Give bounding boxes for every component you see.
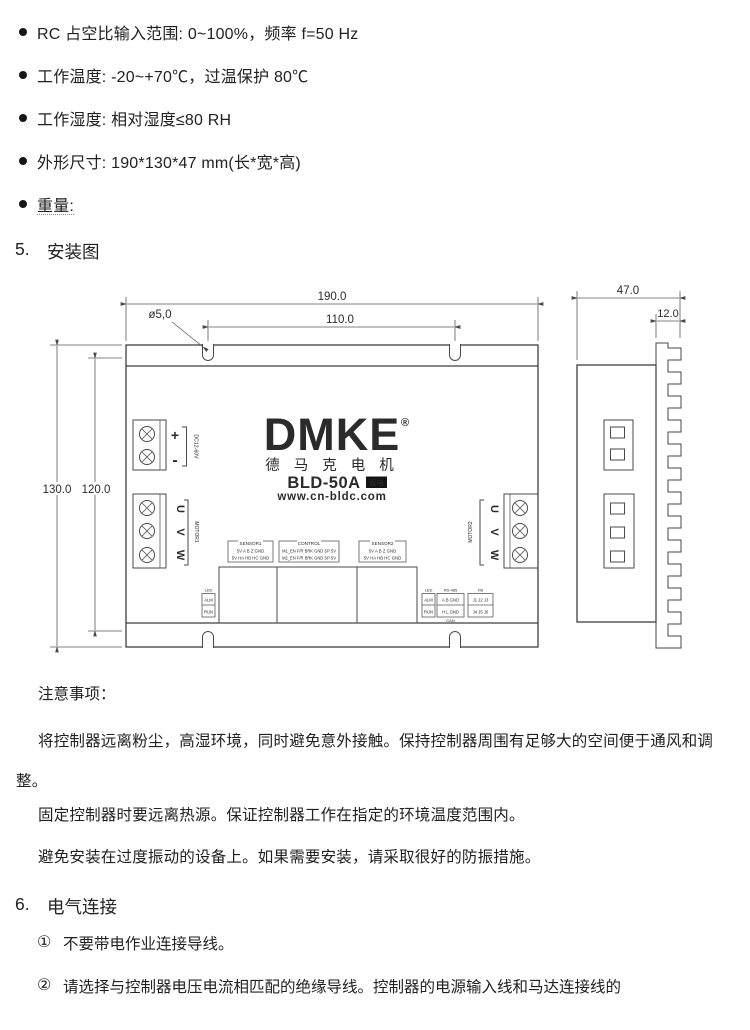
led-title: LED: [205, 588, 213, 593]
run-led-label: RUN: [204, 610, 213, 615]
sensor2-title: SENSOR2: [372, 541, 394, 546]
note-paragraph: 将控制器远离粉尘，高湿环境，同时避免意外接触。保持控制器周围有足够大的空间便于通…: [16, 722, 722, 802]
dim-hole: ø5,0: [148, 309, 171, 321]
control-row2: M2_EN F/R BRK GND SP 5V: [282, 556, 336, 561]
screw-terminal: [140, 501, 155, 516]
heatsink-fins: [656, 343, 681, 648]
list-item-text: 请选择与控制器电压电流相匹配的绝缘导线。控制器的电源输入线和马达连接线的: [63, 975, 621, 997]
side-connector-upper: [604, 420, 633, 470]
list-item-text: 不要带电作业连接导线。: [63, 932, 234, 954]
run-led-label: RUN: [424, 610, 433, 615]
spec-text: 工作湿度: 相对湿度≤80 RH: [37, 106, 231, 130]
brand-chinese: 德 马 克 电 机: [265, 457, 399, 474]
list-item: ① 不要带电作业连接导线。: [37, 932, 234, 954]
dim-height: 130.0: [43, 484, 72, 496]
note-paragraph: 避免安装在过度振动的设备上。如果需要安装，请采取很好的防振措施。: [16, 838, 722, 878]
screw-terminal: [513, 524, 528, 539]
motor1-pin-v: V: [174, 528, 186, 536]
alarm-led-label: ALM: [424, 598, 433, 603]
section-number: 5.: [15, 239, 47, 264]
motor2-terminal-block: U V W MOTOR2: [468, 494, 538, 568]
motor2-pin-v: V: [488, 528, 500, 536]
spec-item: 外形尺寸: 190*130*47 mm(长*宽*高): [19, 139, 358, 182]
sensor2-pinout: SENSOR2 5V A B Z GND 5V HA HB HC GND: [359, 539, 406, 563]
section-5-heading: 5. 安装图: [15, 239, 100, 264]
rs485-can-port: RS-485 A B GND H L GND CAN: [437, 588, 464, 624]
side-connector-lower: [604, 494, 634, 568]
led-indicator-left: LED ALM RUN: [202, 588, 215, 618]
circled-number-icon: ②: [37, 975, 63, 997]
spec-text: 外形尺寸: 190*130*47 mm(长*宽*高): [37, 149, 301, 173]
motor2-label: MOTOR2: [468, 521, 474, 543]
control-title: CONTROL: [298, 541, 321, 546]
note-paragraph: 固定控制器时要远离热源。保证控制器工作在指定的环境温度范围内。: [16, 796, 722, 836]
spec-item: 工作温度: -20~+70℃，过温保护 80℃: [19, 53, 358, 96]
section-title: 电气连接: [47, 894, 117, 919]
rs485-title: RS-485: [444, 588, 458, 593]
sensor1-pinout: SENSOR1 5V A B Z GND 5V HA HB HC GND: [228, 539, 273, 563]
sensor1-row1: 5V A B Z GND: [237, 549, 264, 554]
section-title: 安装图: [47, 239, 100, 264]
spec-item: 工作湿度: 相对湿度≤80 RH: [19, 96, 358, 139]
rs485-row1: A B GND: [442, 598, 459, 603]
sensor2-connector: [357, 567, 417, 623]
spec-item: RC 占空比输入范围: 0~100%，频率 f=50 Hz: [19, 10, 358, 53]
side-view: [577, 343, 681, 648]
motor1-pin-w: W: [174, 550, 186, 561]
dim-inner-height: 120.0: [82, 484, 111, 496]
spec-text: RC 占空比输入范围: 0~100%，频率 f=50 Hz: [37, 20, 358, 44]
brand-logo: DMKE ® 德 马 克 电 机 BLD-50A 双电 www.cn-bldc.…: [264, 409, 409, 503]
motor2-pin-w: W: [488, 550, 500, 561]
section-number: 6.: [15, 894, 47, 919]
brand-name: DMKE: [264, 409, 401, 460]
jumper-row2: J4 J5 J6: [473, 610, 489, 615]
motor2-pin-u: U: [488, 505, 500, 513]
spec-text: 重量:: [37, 192, 74, 216]
dim-fin: 12.0: [657, 308, 678, 320]
registered-mark-icon: ®: [401, 417, 409, 429]
jumper-title: FB: [478, 588, 483, 593]
control-pinout: CONTROL M1_EN F/R BRK GND SP 5V M2_EN F/…: [279, 539, 339, 563]
motor1-pin-u: U: [174, 505, 186, 513]
minus-label: -: [172, 452, 177, 469]
sensor2-row1: 5V A B Z GND: [369, 549, 396, 554]
sensor2-row2: 5V HA HB HC GND: [364, 556, 402, 561]
website: www.cn-bldc.com: [276, 491, 386, 503]
installation-diagram: + - DC12-60V: [0, 270, 750, 670]
section-6-heading: 6. 电气连接: [15, 894, 117, 919]
can-label: CAN: [446, 618, 455, 623]
motor1-label: MOTOR1: [193, 521, 199, 543]
dim-width: 190.0: [318, 291, 347, 303]
bullet-icon: [19, 71, 27, 79]
spec-item: 重量:: [19, 182, 358, 225]
screw-terminal: [140, 427, 155, 442]
bullet-icon: [19, 114, 27, 122]
screw-terminal: [513, 548, 528, 563]
power-terminal-block: + - DC12-60V: [133, 420, 199, 470]
screw-terminal: [513, 501, 528, 516]
model-number: BLD-50A: [287, 474, 360, 492]
screw-terminal: [140, 450, 155, 465]
plus-label: +: [171, 427, 179, 443]
spec-list: RC 占空比输入范围: 0~100%，频率 f=50 Hz 工作温度: -20~…: [19, 10, 358, 225]
jumper-block: FB J1 J2 J3 J4 J5 J6: [468, 588, 493, 618]
bullet-icon: [19, 157, 27, 165]
spec-text: 工作温度: -20~+70℃，过温保护 80℃: [37, 63, 308, 87]
led-title: LED: [425, 588, 433, 593]
bullet-icon: [19, 28, 27, 36]
bullet-icon: [19, 200, 27, 208]
manual-page: RC 占空比输入范围: 0~100%，频率 f=50 Hz 工作温度: -20~…: [0, 0, 750, 1030]
notes-title: 注意事项：: [38, 682, 116, 704]
control-row1: M1_EN F/R BRK GND SP 5V: [282, 549, 336, 554]
sensor1-row2: 5V HA HB HC GND: [232, 556, 270, 561]
alarm-led-label: ALM: [204, 598, 213, 603]
motor1-terminal-block: U V W MOTOR1: [133, 494, 199, 568]
dim-slot-span: 110.0: [326, 314, 354, 326]
circled-number-icon: ①: [37, 932, 63, 954]
sensor1-connector: [219, 567, 277, 623]
rs485-row2: H L GND: [442, 610, 459, 615]
control-connector: [277, 567, 357, 623]
dim-depth: 47.0: [617, 285, 639, 297]
voltage-range-label: DC12-60V: [193, 434, 199, 459]
model-badge-text: 双电: [369, 478, 384, 488]
screw-terminal: [140, 524, 155, 539]
list-item: ② 请选择与控制器电压电流相匹配的绝缘导线。控制器的电源输入线和马达连接线的: [37, 975, 621, 997]
front-view: + - DC12-60V: [126, 343, 538, 648]
sensor1-title: SENSOR1: [240, 541, 262, 546]
jumper-row1: J1 J2 J3: [473, 598, 489, 603]
screw-terminal: [140, 548, 155, 563]
led-indicator-right: LED ALM RUN: [422, 588, 435, 618]
